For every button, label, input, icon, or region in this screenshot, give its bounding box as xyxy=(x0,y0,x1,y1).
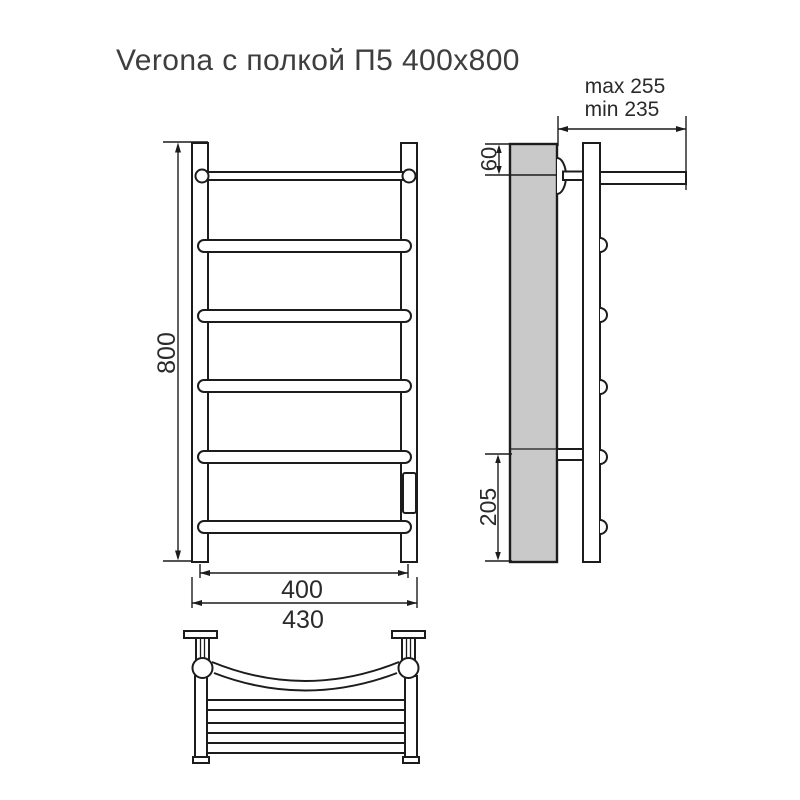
front-rail-curve-outer xyxy=(212,662,399,681)
towel-rung xyxy=(198,380,411,392)
wall-section xyxy=(510,144,557,562)
towel-rung xyxy=(198,240,411,252)
plan-post-cap-right xyxy=(403,757,419,763)
arrowhead-down xyxy=(175,551,181,561)
technical-drawing-page: Verona с полкой П5 400x800 800 xyxy=(0,0,800,800)
dim-label-shelf-drop: 60 xyxy=(477,147,502,171)
lower-bracket xyxy=(557,449,583,460)
dim-label-height: 800 xyxy=(153,332,181,374)
mount-stem-left xyxy=(196,638,209,660)
dim-label-depth-min: min 235 xyxy=(585,98,660,121)
rung-bump xyxy=(600,520,607,534)
top-rail xyxy=(202,172,409,180)
rail-joint-left xyxy=(196,170,209,183)
dim-label-rail-width: 400 xyxy=(281,576,323,604)
rung-bump xyxy=(600,238,607,252)
arrowhead-right xyxy=(407,600,417,606)
front-view: 800 400 xyxy=(153,142,417,634)
arrowhead-up xyxy=(495,455,501,464)
plan-joint-left xyxy=(193,658,213,678)
plan-post-left xyxy=(195,676,207,757)
mount-pin xyxy=(563,172,583,181)
arrowhead-up xyxy=(175,143,181,153)
mount-stem-right xyxy=(402,638,415,660)
plan-post-cap-left xyxy=(193,757,209,763)
towel-rung xyxy=(198,451,411,463)
rung-bump xyxy=(600,308,607,322)
dim-label-lower-section: 205 xyxy=(475,488,501,526)
rail-joint-right xyxy=(403,170,416,183)
wall-mount-plate-right xyxy=(392,631,425,638)
side-view: 60 205 max 255 min 235 xyxy=(475,75,686,562)
arrowhead-down xyxy=(495,552,501,561)
arrowhead-left xyxy=(200,570,210,576)
arrowhead-left xyxy=(192,600,202,606)
dim-lower-section: 205 xyxy=(475,454,512,561)
plan-post-right xyxy=(405,676,417,757)
side-post xyxy=(583,143,600,562)
rung-bump xyxy=(600,450,607,464)
dim-label-overall-width: 430 xyxy=(282,606,324,634)
wall-mount-plate-left xyxy=(184,631,217,638)
rung-profile-bumps xyxy=(600,238,607,534)
arrowhead-left xyxy=(558,126,568,132)
dim-rail-width: 400 xyxy=(200,564,408,604)
towel-rung xyxy=(198,310,411,322)
dim-label-depth-max: max 255 xyxy=(585,75,666,98)
shelf-slats xyxy=(207,700,405,753)
towel-rail-drawing: 800 400 xyxy=(0,0,800,800)
arrowhead-right xyxy=(398,570,408,576)
power-switch-box xyxy=(403,473,416,513)
rung-bump xyxy=(600,380,607,394)
left-post xyxy=(192,143,208,562)
arrowhead-right xyxy=(676,126,686,132)
shelf-profile xyxy=(600,172,686,184)
towel-rung xyxy=(198,521,411,533)
plan-joint-right xyxy=(399,658,419,678)
towel-rungs xyxy=(198,240,411,533)
plan-view xyxy=(184,631,425,763)
